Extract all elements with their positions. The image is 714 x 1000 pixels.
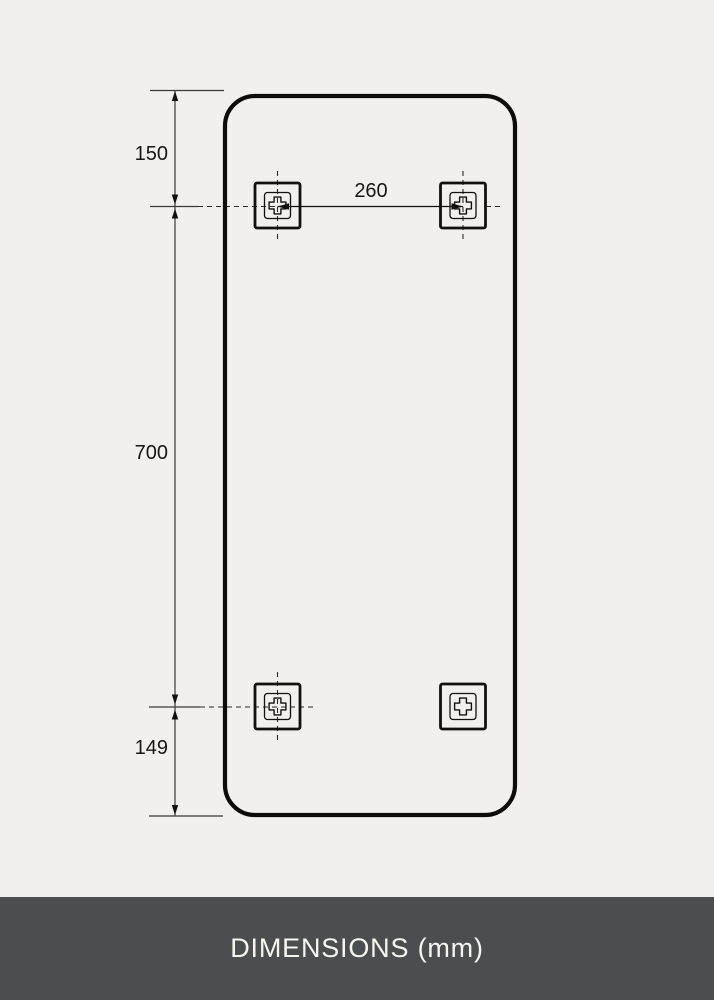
dimension-label-vertical-span: 700 — [135, 442, 168, 464]
dimensions-diagram: 260 150 700 149 — [0, 0, 714, 897]
arrow-down-icon — [172, 805, 178, 815]
dimension-label-bracket-spacing: 260 — [354, 180, 387, 202]
footer-bar: DIMENSIONS (mm) — [0, 897, 714, 1000]
arrow-down-icon — [172, 195, 178, 205]
mounting-bracket-bottom-right — [441, 684, 486, 729]
arrow-up-icon — [172, 91, 178, 101]
dimension-label-bottom-offset: 149 — [135, 737, 168, 759]
arrow-up-icon — [172, 209, 178, 219]
arrow-down-icon — [172, 695, 178, 705]
dimensions-diagram-page: 260 150 700 149 DIMENSIONS (mm) — [0, 0, 714, 1000]
horizontal-dimension-260: 260 — [278, 180, 464, 210]
dimension-label-top-offset: 150 — [135, 143, 168, 165]
footer-title: DIMENSIONS (mm) — [230, 933, 483, 964]
bracket-centerlines — [198, 171, 500, 742]
arrow-up-icon — [172, 710, 178, 720]
